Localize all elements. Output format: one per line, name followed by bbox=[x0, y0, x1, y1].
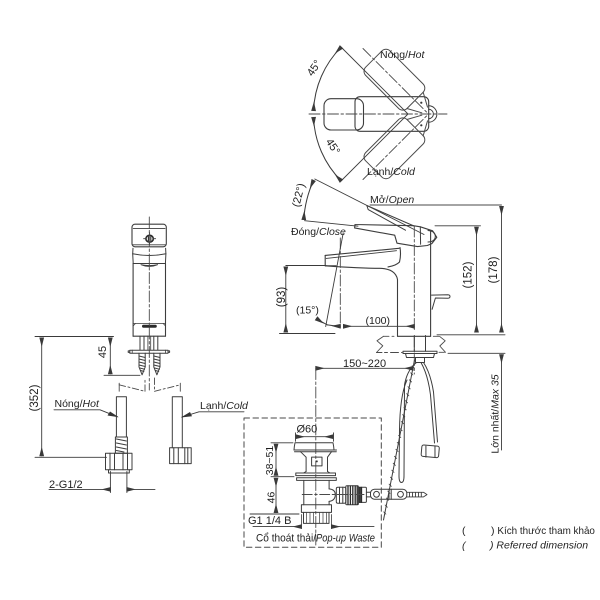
svg-text:Lớn nhất/Max 35: Lớn nhất/Max 35 bbox=[490, 374, 502, 453]
svg-text:(93): (93) bbox=[276, 287, 288, 308]
svg-text:Lạnh/Cold: Lạnh/Cold bbox=[200, 400, 249, 412]
svg-text:Nóng/Hot: Nóng/Hot bbox=[55, 398, 100, 410]
svg-text:(100): (100) bbox=[366, 315, 391, 327]
svg-text:Mở/Open: Mở/Open bbox=[370, 194, 414, 206]
svg-text:(152): (152) bbox=[463, 261, 475, 288]
svg-text:() Referred dimension: () Referred dimension bbox=[462, 540, 588, 553]
svg-text:Cổ thoát thải/Pop-up Waste: Cổ thoát thải/Pop-up Waste bbox=[256, 533, 375, 545]
svg-text:Lạnh/Cold: Lạnh/Cold bbox=[367, 166, 416, 178]
svg-text:Đóng/Close: Đóng/Close bbox=[291, 226, 346, 238]
svg-text:45: 45 bbox=[97, 346, 109, 358]
svg-text:G1 1/4 B: G1 1/4 B bbox=[248, 515, 291, 527]
svg-text:2-G1/2: 2-G1/2 bbox=[49, 479, 83, 491]
svg-text:150~220: 150~220 bbox=[343, 358, 386, 370]
svg-text:() Kích thước tham khảo: () Kích thước tham khảo bbox=[462, 525, 595, 537]
svg-text:(352): (352) bbox=[29, 384, 41, 411]
svg-text:(15°): (15°) bbox=[296, 305, 319, 317]
svg-text:Ø60: Ø60 bbox=[297, 424, 318, 436]
svg-text:46: 46 bbox=[266, 492, 278, 504]
svg-text:(178): (178) bbox=[488, 256, 500, 283]
svg-text:38~51: 38~51 bbox=[264, 446, 276, 476]
svg-text:(22°): (22°) bbox=[290, 182, 307, 208]
svg-text:Nóng/Hot: Nóng/Hot bbox=[380, 49, 425, 61]
svg-text:45°: 45° bbox=[323, 137, 342, 158]
